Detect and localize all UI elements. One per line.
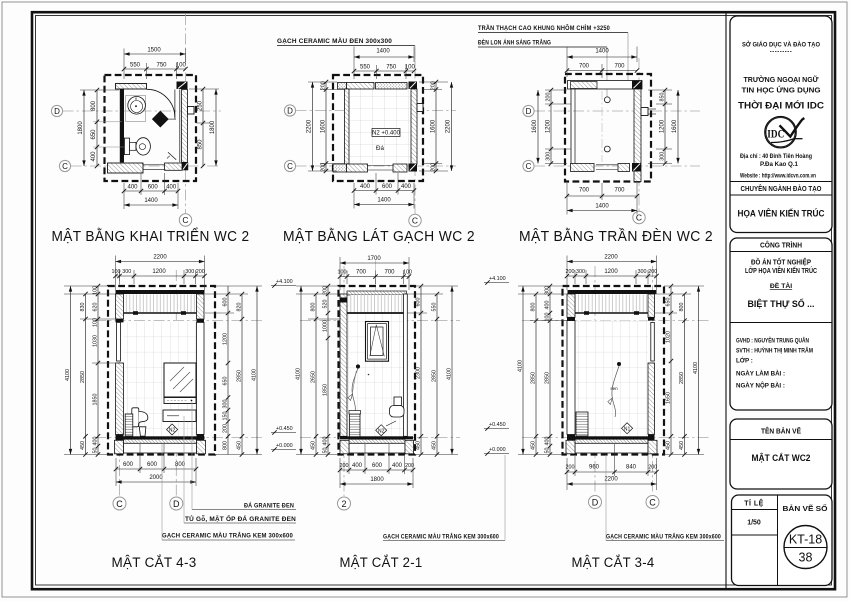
- svg-text:C: C: [287, 162, 293, 171]
- svg-text:100: 100: [544, 313, 550, 322]
- svg-text:BIỆT THỰ SỐ ...: BIỆT THỰ SỐ ...: [748, 298, 815, 309]
- svg-text:200: 200: [340, 463, 349, 469]
- svg-text:4100: 4100: [446, 368, 452, 380]
- svg-text:200: 200: [430, 81, 436, 90]
- svg-text:100: 100: [405, 65, 416, 71]
- svg-text:300: 300: [576, 269, 585, 275]
- svg-text:200: 200: [566, 465, 575, 471]
- svg-text:400: 400: [166, 185, 177, 191]
- svg-text:LỚP :: LỚP :: [736, 357, 753, 365]
- svg-text:100: 100: [403, 270, 412, 276]
- svg-text:ĐÈN LON ÁNH SÁNG TRẮNG: ĐÈN LON ÁNH SÁNG TRẮNG: [478, 39, 551, 47]
- svg-text:400: 400: [544, 301, 550, 310]
- svg-text:NGÀY LÀM BÀI :: NGÀY LÀM BÀI :: [736, 371, 785, 378]
- svg-text:Website : http://www.idcvn.com: Website : http://www.idcvn.com.vn: [740, 173, 816, 180]
- svg-text:N2: N2: [378, 428, 385, 434]
- svg-text:2650: 2650: [310, 371, 316, 383]
- svg-text:TIN HỌC ỨNG DỤNG: TIN HỌC ỨNG DỤNG: [742, 86, 821, 95]
- svg-text:200: 200: [648, 269, 657, 275]
- svg-text:GẠCH CERAMIC MÀU TRẮNG KEM 300: GẠCH CERAMIC MÀU TRẮNG KEM 300x600: [162, 532, 293, 540]
- svg-text:400: 400: [544, 437, 550, 446]
- svg-text:NGÀY NỘP BÀI :: NGÀY NỘP BÀI :: [736, 382, 785, 390]
- svg-text:C: C: [412, 216, 418, 226]
- svg-text:MẬT CẮT 4-3: MẬT CẮT 4-3: [112, 555, 197, 570]
- svg-text:+0.450: +0.450: [489, 422, 506, 428]
- svg-text:50: 50: [92, 448, 98, 454]
- svg-text:4100: 4100: [693, 362, 699, 374]
- svg-text:100: 100: [92, 286, 98, 295]
- svg-text:MẬT BẰNG LÁT GẠCH WC 2: MẬT BẰNG LÁT GẠCH WC 2: [283, 227, 475, 245]
- svg-text:2850: 2850: [679, 372, 685, 384]
- svg-text:CHUYÊN NGÀNH ĐÀO TẠO: CHUYÊN NGÀNH ĐÀO TẠO: [741, 184, 822, 193]
- svg-text:C: C: [182, 215, 188, 225]
- svg-text:MẬT CẮT 2-1: MẬT CẮT 2-1: [340, 555, 423, 570]
- svg-text:300: 300: [185, 269, 194, 275]
- svg-text:1200: 1200: [659, 119, 665, 133]
- svg-text:400: 400: [92, 437, 98, 446]
- svg-text:2: 2: [341, 499, 346, 509]
- svg-text:TỈ LỆ: TỈ LỆ: [744, 499, 764, 508]
- svg-text:100: 100: [112, 269, 121, 275]
- svg-text:1850: 1850: [92, 394, 98, 406]
- svg-text:620: 620: [92, 303, 98, 312]
- svg-text:100: 100: [92, 318, 98, 327]
- svg-text:1400: 1400: [595, 49, 609, 55]
- svg-text:2850: 2850: [431, 370, 437, 382]
- svg-text:2200: 2200: [307, 119, 313, 133]
- svg-text:1400: 1400: [377, 198, 391, 204]
- svg-text:D: D: [173, 499, 180, 509]
- svg-text:1600: 1600: [672, 119, 678, 133]
- svg-text:450: 450: [310, 441, 316, 450]
- svg-text:MẬT BẰNG TRẦN ĐÈN WC 2: MẬT BẰNG TRẦN ĐÈN WC 2: [519, 227, 713, 245]
- svg-text:C: C: [526, 162, 532, 171]
- svg-text:750: 750: [156, 63, 167, 69]
- svg-text:2850: 2850: [530, 372, 536, 384]
- svg-text:50: 50: [322, 448, 328, 454]
- svg-text:1000: 1000: [322, 320, 328, 332]
- svg-text:250: 250: [197, 100, 203, 111]
- svg-text:+0.000: +0.000: [276, 443, 293, 449]
- svg-text:1200: 1200: [222, 333, 228, 345]
- svg-text:1600: 1600: [430, 119, 436, 133]
- svg-text:450: 450: [415, 441, 421, 450]
- svg-text:960: 960: [589, 465, 600, 471]
- svg-text:600: 600: [415, 298, 421, 307]
- svg-text:N1: N1: [624, 427, 631, 433]
- svg-text:sen: sen: [610, 386, 618, 391]
- svg-text:600: 600: [372, 463, 383, 469]
- svg-text:200: 200: [545, 93, 551, 102]
- svg-text:300: 300: [544, 286, 550, 295]
- svg-text:1700: 1700: [367, 256, 381, 262]
- svg-text:1850: 1850: [322, 384, 328, 396]
- svg-text:+0.000: +0.000: [489, 447, 506, 453]
- svg-text:TỦ Gỗ, MẶT ỐP ĐÁ GRANITE ĐEN: TỦ Gỗ, MẶT ỐP ĐÁ GRANITE ĐEN: [185, 516, 296, 523]
- svg-text:1600: 1600: [320, 119, 326, 133]
- svg-text:2850: 2850: [544, 372, 550, 384]
- svg-text:400: 400: [127, 185, 138, 191]
- svg-text:600: 600: [123, 462, 134, 468]
- svg-text:600: 600: [147, 462, 158, 468]
- svg-text:CÔNG TRÌNH: CÔNG TRÌNH: [760, 241, 802, 250]
- svg-text:1400: 1400: [595, 204, 609, 210]
- svg-text:C: C: [116, 499, 123, 509]
- svg-text:1400: 1400: [376, 49, 390, 55]
- svg-text:1500: 1500: [147, 48, 161, 54]
- svg-text:D: D: [526, 107, 532, 116]
- svg-text:450: 450: [80, 441, 86, 450]
- svg-text:100: 100: [176, 63, 187, 69]
- svg-text:300: 300: [659, 152, 665, 161]
- svg-text:830: 830: [80, 303, 86, 312]
- svg-text:ĐÁ GRANITE ĐEN: ĐÁ GRANITE ĐEN: [244, 503, 294, 510]
- svg-text:200: 200: [322, 286, 328, 295]
- svg-text:200: 200: [566, 269, 575, 275]
- svg-text:2300: 2300: [415, 367, 421, 379]
- svg-text:1030: 1030: [92, 335, 98, 347]
- svg-text:600: 600: [148, 185, 159, 191]
- svg-text:1020: 1020: [665, 331, 671, 343]
- svg-text:Địa chỉ : 40 Đinh Tiên Hoàng: Địa chỉ : 40 Đinh Tiên Hoàng: [740, 153, 812, 160]
- svg-text:2000: 2000: [149, 475, 163, 481]
- svg-text:800: 800: [679, 303, 685, 312]
- svg-text:N2: N2: [169, 428, 176, 434]
- svg-text:400: 400: [401, 184, 412, 190]
- svg-text:TRƯỜNG NGOẠI NGỮ: TRƯỜNG NGOẠI NGỮ: [744, 75, 820, 84]
- svg-text:200: 200: [320, 163, 326, 172]
- svg-text:KT-18: KT-18: [789, 533, 822, 547]
- svg-text:+0.450: +0.450: [276, 426, 293, 432]
- svg-text:840: 840: [626, 465, 637, 471]
- svg-text:800: 800: [530, 303, 536, 312]
- svg-text:700: 700: [579, 64, 590, 70]
- svg-text:200: 200: [222, 424, 228, 433]
- svg-text:1/50: 1/50: [747, 520, 761, 527]
- svg-text:200: 200: [648, 465, 657, 471]
- svg-text:TRẦN THẠCH CAO KHUNG NHÔM CHÌM: TRẦN THẠCH CAO KHUNG NHÔM CHÌM +3250: [478, 24, 610, 32]
- svg-text:550: 550: [431, 303, 437, 312]
- svg-text:820: 820: [236, 303, 242, 312]
- svg-text:D: D: [592, 497, 599, 507]
- svg-text:450: 450: [236, 441, 242, 450]
- svg-text:520: 520: [322, 300, 328, 309]
- svg-text:1400: 1400: [144, 198, 158, 204]
- svg-text:550: 550: [130, 63, 141, 69]
- svg-text:2200: 2200: [153, 255, 167, 261]
- svg-text:HỌA VIÊN KIẾN TRÚC: HỌA VIÊN KIẾN TRÚC: [738, 208, 825, 220]
- svg-text:Đá: Đá: [376, 145, 384, 152]
- svg-text:550: 550: [360, 65, 371, 71]
- svg-text:700: 700: [356, 270, 367, 276]
- svg-text:100: 100: [338, 270, 347, 276]
- svg-text:SỞ GIÁO DỤC VÀ ĐÀO TẠO: SỞ GIÁO DỤC VÀ ĐÀO TẠO: [742, 42, 820, 49]
- svg-text:1200: 1200: [545, 119, 551, 133]
- svg-text:4100: 4100: [295, 368, 301, 380]
- svg-text:450: 450: [530, 441, 536, 450]
- svg-text:300: 300: [638, 269, 647, 275]
- svg-text:650: 650: [222, 377, 228, 386]
- svg-text:400: 400: [360, 184, 371, 190]
- svg-text:400: 400: [322, 437, 328, 446]
- svg-text:1600: 1600: [532, 119, 538, 133]
- svg-text:600: 600: [222, 298, 228, 307]
- svg-text:C: C: [649, 497, 656, 507]
- svg-text:200: 200: [430, 163, 436, 172]
- svg-text:1800: 1800: [370, 477, 384, 483]
- svg-text:400: 400: [352, 463, 363, 469]
- svg-text:38: 38: [799, 551, 813, 565]
- svg-text:450: 450: [431, 441, 437, 450]
- svg-text:850: 850: [659, 93, 665, 102]
- svg-text:2200: 2200: [604, 477, 618, 483]
- svg-text:300: 300: [222, 400, 228, 409]
- svg-text:THỜI ĐẠI MỚI IDC: THỜI ĐẠI MỚI IDC: [738, 100, 824, 112]
- svg-text:C: C: [62, 162, 68, 171]
- svg-text:300: 300: [545, 152, 551, 161]
- svg-text:450: 450: [665, 441, 671, 450]
- svg-text:2200: 2200: [446, 119, 452, 133]
- svg-text:MẬT BẰNG KHAI TRIỂN WC 2: MẬT BẰNG KHAI TRIỂN WC 2: [52, 227, 250, 245]
- svg-text:+4.100: +4.100: [276, 279, 293, 285]
- svg-text:TÊN BẢN VẼ: TÊN BẢN VẼ: [761, 427, 801, 436]
- svg-text:IDC: IDC: [767, 128, 784, 140]
- svg-text:D: D: [54, 107, 60, 116]
- svg-text:400: 400: [91, 151, 97, 162]
- svg-text:650: 650: [665, 298, 671, 307]
- svg-text:2200: 2200: [604, 255, 618, 261]
- svg-text:4100: 4100: [65, 369, 71, 381]
- svg-text:300: 300: [122, 269, 131, 275]
- svg-text:GẠCH CERAMIC MÀU TRẮNG KEM 300: GẠCH CERAMIC MÀU TRẮNG KEM 300x600: [606, 533, 721, 541]
- svg-text:1200: 1200: [604, 269, 618, 275]
- svg-text:4100: 4100: [251, 369, 257, 381]
- svg-text:N2 +0.400: N2 +0.400: [372, 131, 401, 137]
- svg-text:650: 650: [91, 129, 97, 140]
- svg-text:600: 600: [382, 184, 393, 190]
- svg-text:800: 800: [310, 303, 316, 312]
- svg-text:400: 400: [392, 463, 403, 469]
- svg-text:850: 850: [197, 139, 203, 150]
- svg-text:700: 700: [384, 270, 395, 276]
- svg-text:200: 200: [196, 269, 205, 275]
- svg-text:---------: ---------: [770, 50, 792, 56]
- svg-text:GVHD : NGUYỄN TRUNG QUÂN: GVHD : NGUYỄN TRUNG QUÂN: [736, 338, 809, 345]
- svg-text:GẠCH CERAMIC MÀU TRẮNG KEM 300: GẠCH CERAMIC MÀU TRẮNG KEM 300x600: [383, 533, 499, 541]
- svg-text:1800: 1800: [210, 120, 216, 134]
- svg-text:P.Đa Kao Q.1: P.Đa Kao Q.1: [760, 161, 799, 168]
- svg-text:200: 200: [320, 81, 326, 90]
- svg-text:SVTH : HUỲNH THỊ MINH TRÂM: SVTH : HUỲNH THỊ MINH TRÂM: [736, 348, 813, 355]
- svg-text:MẬT CẮT 3-4: MẬT CẮT 3-4: [572, 555, 655, 570]
- svg-text:GẠCH CERAMIC MÀU ĐEN 300x300: GẠCH CERAMIC MÀU ĐEN 300x300: [277, 38, 392, 45]
- svg-text:150: 150: [222, 412, 228, 421]
- svg-text:700: 700: [614, 188, 625, 194]
- svg-text:700: 700: [614, 64, 625, 70]
- svg-text:200: 200: [405, 463, 414, 469]
- svg-text:750: 750: [386, 65, 397, 71]
- svg-text:1800: 1800: [78, 121, 84, 135]
- svg-text:1200: 1200: [152, 269, 166, 275]
- svg-text:MẬT CẮT WC2: MẬT CẮT WC2: [752, 452, 811, 463]
- svg-text:50: 50: [544, 448, 550, 454]
- svg-text:700: 700: [579, 188, 590, 194]
- svg-text:D: D: [287, 107, 293, 116]
- svg-text:2850: 2850: [80, 371, 86, 383]
- svg-text:450: 450: [679, 441, 685, 450]
- svg-text:Đ2: Đ2: [157, 117, 164, 123]
- svg-text:800: 800: [222, 441, 228, 450]
- svg-text:2850: 2850: [236, 370, 242, 382]
- svg-text:4100: 4100: [517, 360, 523, 372]
- svg-text:800: 800: [91, 100, 97, 111]
- svg-text:+4.100: +4.100: [489, 276, 506, 282]
- svg-text:1650: 1650: [665, 392, 671, 404]
